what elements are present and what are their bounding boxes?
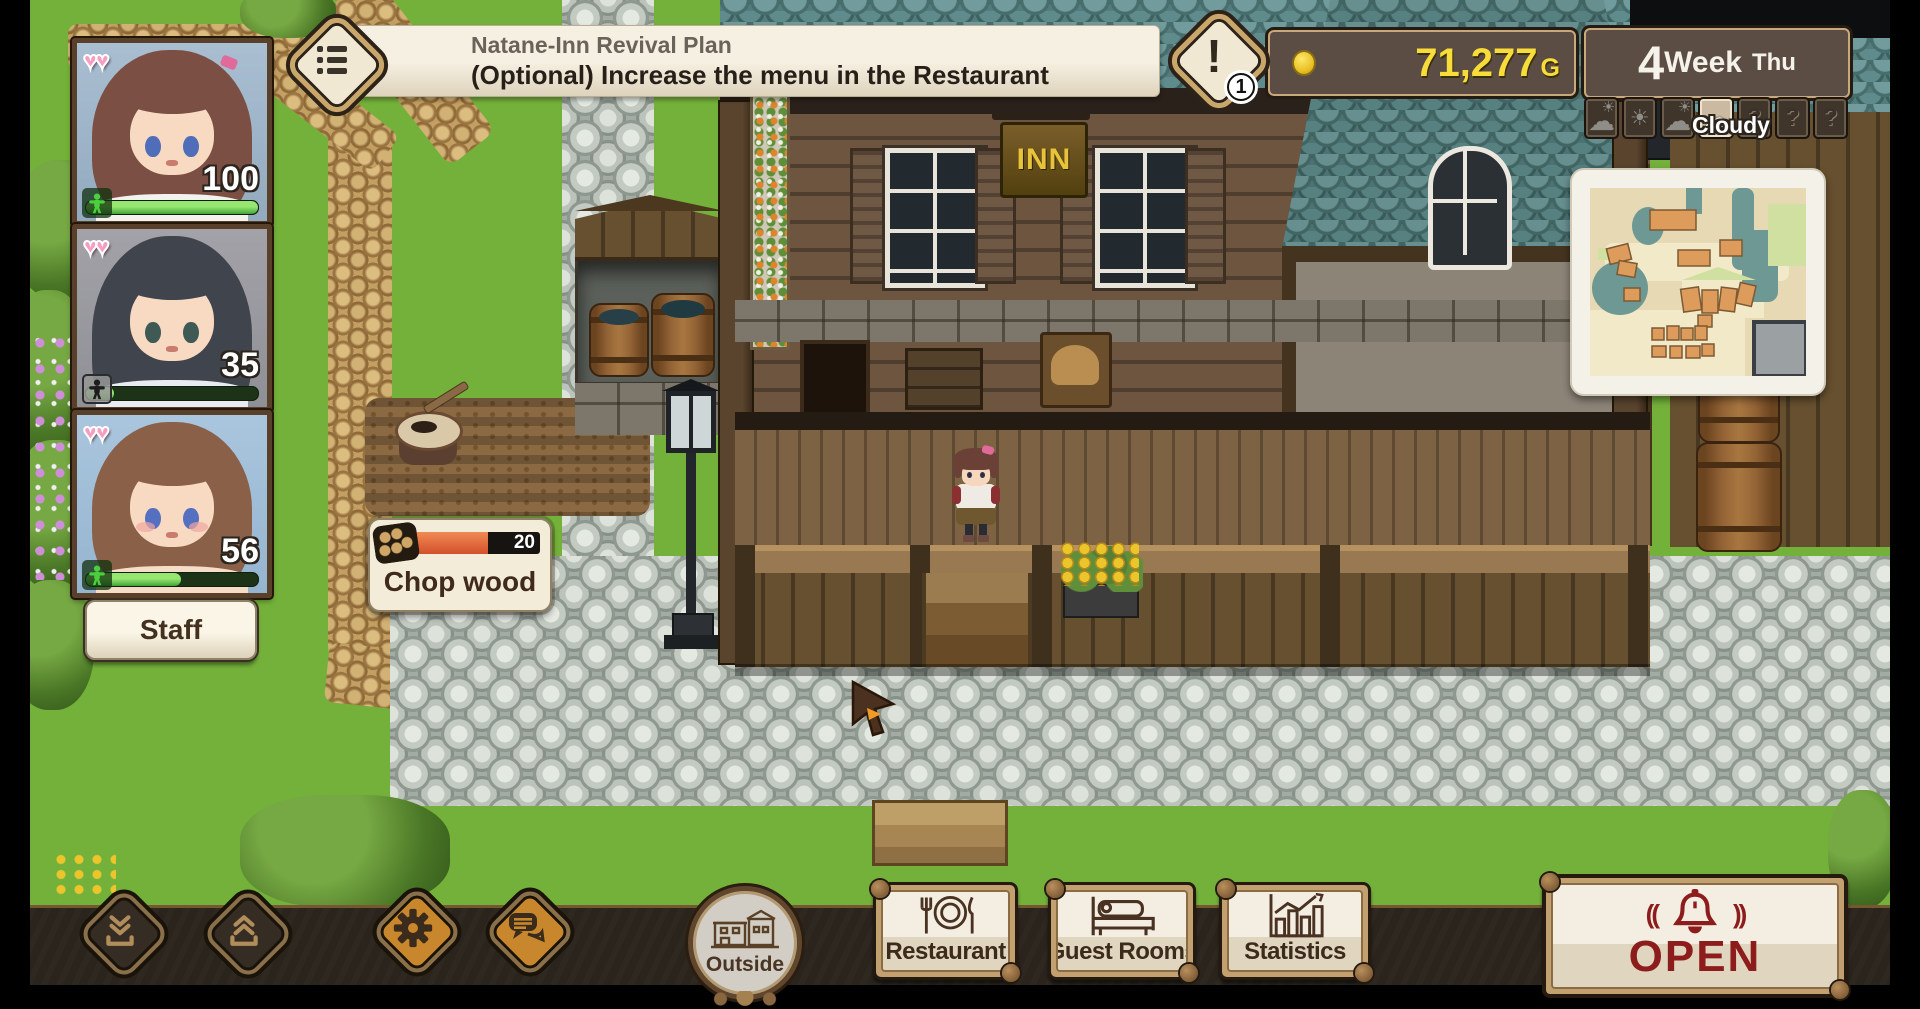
quest-list-icon [317, 46, 347, 74]
stamina-value: 56 [221, 532, 259, 571]
stamina-value: 35 [221, 346, 259, 385]
deck-front [735, 573, 1650, 667]
affection-hearts: ♥♥ [83, 419, 107, 448]
open-button[interactable]: (( )) OPEN [1542, 874, 1848, 998]
inn-sign: INN [1000, 122, 1088, 198]
save-icon [78, 888, 162, 972]
deck-post [1628, 545, 1648, 667]
weather-day-2: ☀ [1622, 97, 1657, 139]
quest-alert-badge[interactable]: ! 1 [1166, 8, 1262, 104]
quest-title: Natane-Inn Revival Plan [471, 32, 732, 59]
restaurant-icon [909, 892, 983, 940]
tree-stump-chopping-block[interactable] [395, 405, 461, 469]
deck-floor [735, 430, 1650, 546]
weather-day-7: ? [1813, 97, 1848, 139]
person-icon-green [82, 560, 112, 590]
deck-post [1320, 545, 1340, 667]
weather-day-1: ☀☁ [1584, 97, 1619, 139]
stamina-value: 100 [202, 160, 259, 199]
inn-sign-text: INN [1017, 143, 1072, 177]
affection-hearts: ♥♥ [83, 47, 107, 76]
weather-current-label: Cloudy [1676, 112, 1786, 139]
load-button[interactable] [202, 888, 286, 972]
inn-window [1095, 148, 1195, 288]
outside-button-label: Outside [706, 953, 784, 977]
bed-icon [1083, 892, 1161, 940]
quest-subtitle: (Optional) Increase the menu in the Rest… [471, 60, 1049, 91]
party-member-1-card[interactable]: ♥♥ 100 [72, 38, 272, 226]
minimap-image [1590, 188, 1806, 376]
deck-shadow [735, 664, 1650, 676]
bell-icon: (( )) [1553, 889, 1837, 939]
statistics-button-label: Statistics [1244, 940, 1346, 970]
date-display: 4 Week Thu [1584, 28, 1850, 98]
character-sprite [952, 448, 1000, 542]
chop-wood-tooltip: 20 Chop wood [368, 518, 552, 612]
flower-planter [1055, 540, 1143, 618]
minimap[interactable] [1570, 168, 1826, 396]
deck-steps [922, 573, 1032, 667]
party-member-2-card[interactable]: ♥♥ 35 [72, 224, 272, 412]
stone-course [735, 300, 1650, 342]
game-screen: INN [0, 0, 1920, 1009]
boarded-hatch [905, 348, 983, 410]
menu-board [1040, 332, 1112, 408]
gold-suffix: G [1541, 54, 1560, 83]
stats-icon [1260, 892, 1330, 940]
guest-rooms-button[interactable]: Guest Rooms [1048, 882, 1196, 980]
task-progress-bar: 20 [404, 532, 540, 554]
window-shutter [1185, 148, 1226, 284]
outside-button[interactable]: Outside [688, 886, 802, 1000]
save-button[interactable] [78, 888, 162, 972]
week-label: Week [1664, 32, 1742, 94]
staff-button[interactable]: Staff [85, 600, 257, 660]
stone-steps [872, 800, 1008, 866]
gold-amount: 71,277 [1415, 41, 1537, 86]
guest-rooms-button-label: Guest Rooms [1056, 940, 1188, 970]
party-member-3-card[interactable]: ♥♥ 56 [72, 410, 272, 598]
medallion-flourish [710, 991, 780, 1007]
door [800, 340, 870, 418]
arched-window [1428, 146, 1512, 270]
gear-icon [371, 886, 455, 970]
inn-sign-hanger [992, 112, 1090, 120]
task-label: Chop wood [370, 566, 550, 598]
quest-log-badge[interactable] [284, 12, 380, 108]
deck-post [1032, 545, 1052, 667]
barrel [1696, 442, 1782, 552]
inn-window [885, 148, 985, 288]
statistics-button[interactable]: Statistics [1219, 882, 1371, 980]
house-icon [709, 909, 781, 951]
deck-post [735, 545, 755, 667]
restaurant-button[interactable]: Restaurant [873, 882, 1018, 980]
purple-flowers [30, 330, 72, 580]
person-icon-green [82, 188, 112, 218]
task-progress-value: 20 [514, 532, 535, 554]
day-label: Thu [1752, 30, 1796, 96]
week-number: 4 [1638, 32, 1664, 94]
open-button-label: OPEN [1629, 935, 1762, 987]
chat-icon [484, 886, 568, 970]
deck-edge-board [735, 545, 1650, 573]
game-scene: INN [30, 0, 1890, 1009]
alert-count-badge: 1 [1224, 70, 1258, 104]
chat-button[interactable] [484, 886, 568, 970]
settings-button[interactable] [371, 886, 455, 970]
gold-display: 71,277 G [1268, 30, 1576, 96]
wood-pile-icon [372, 521, 421, 565]
person-icon-dark [82, 374, 112, 404]
staff-button-label: Staff [140, 614, 202, 646]
quest-banner[interactable]: Natane-Inn Revival Plan (Optional) Incre… [352, 25, 1160, 97]
restaurant-button-label: Restaurant [885, 940, 1005, 970]
load-icon [202, 888, 286, 972]
coin-icon [1292, 50, 1316, 76]
affection-hearts: ♥♥ [83, 233, 107, 262]
